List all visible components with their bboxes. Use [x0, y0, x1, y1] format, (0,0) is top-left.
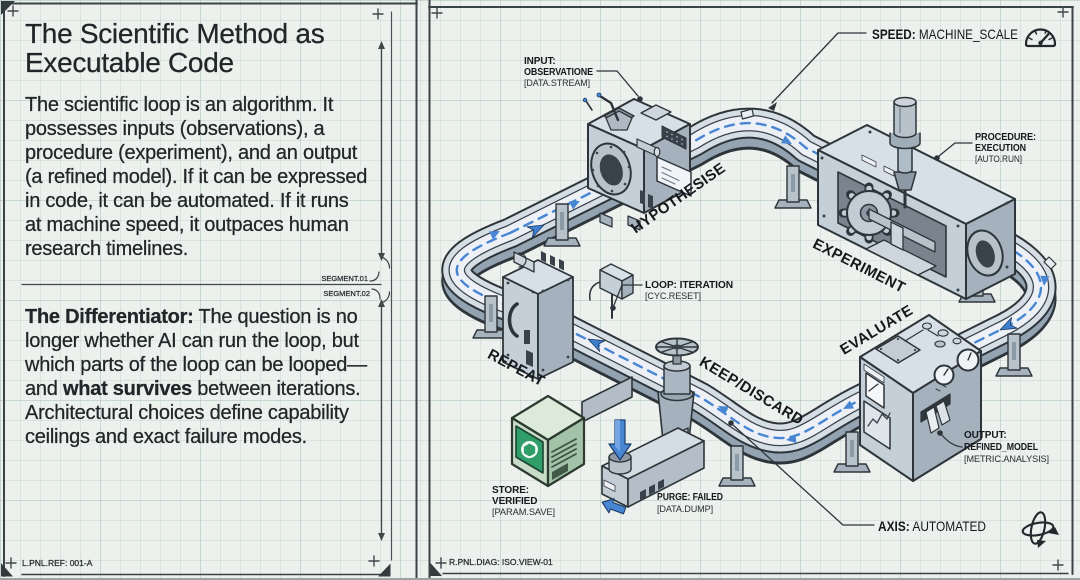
svg-text:SPEED: MACHINE_SCALE: SPEED: MACHINE_SCALE [872, 26, 1018, 42]
svg-text:[AUTO.RUN]: [AUTO.RUN] [975, 154, 1022, 165]
svg-text:[DATA.DUMP]: [DATA.DUMP] [657, 504, 713, 515]
svg-text:[PARAM.SAVE]: [PARAM.SAVE] [492, 507, 555, 518]
svg-text:PURGE: FAILED: PURGE: FAILED [657, 492, 723, 503]
svg-text:[METRIC.ANALYSIS]: [METRIC.ANALYSIS] [964, 454, 1049, 465]
svg-text:[CYC.RESET]: [CYC.RESET] [645, 291, 701, 302]
svg-text:VERIFIED: VERIFIED [492, 496, 537, 507]
svg-text:EXECUTION: EXECUTION [975, 143, 1026, 154]
svg-text:INPUT:: INPUT: [524, 56, 556, 67]
svg-text:LOOP: ITERATION: LOOP: ITERATION [645, 280, 733, 291]
svg-text:STORE:: STORE: [492, 485, 529, 496]
svg-text:[DATA.STREAM]: [DATA.STREAM] [524, 78, 590, 89]
svg-text:REFINED_MODEL: REFINED_MODEL [964, 442, 1038, 453]
svg-text:OUTPUT:: OUTPUT: [964, 430, 1007, 441]
svg-text:OBSERVATIONE: OBSERVATIONE [524, 67, 593, 78]
svg-text:PROCEDURE:: PROCEDURE: [975, 132, 1036, 143]
svg-text:AXIS: AUTOMATED: AXIS: AUTOMATED [878, 518, 986, 534]
